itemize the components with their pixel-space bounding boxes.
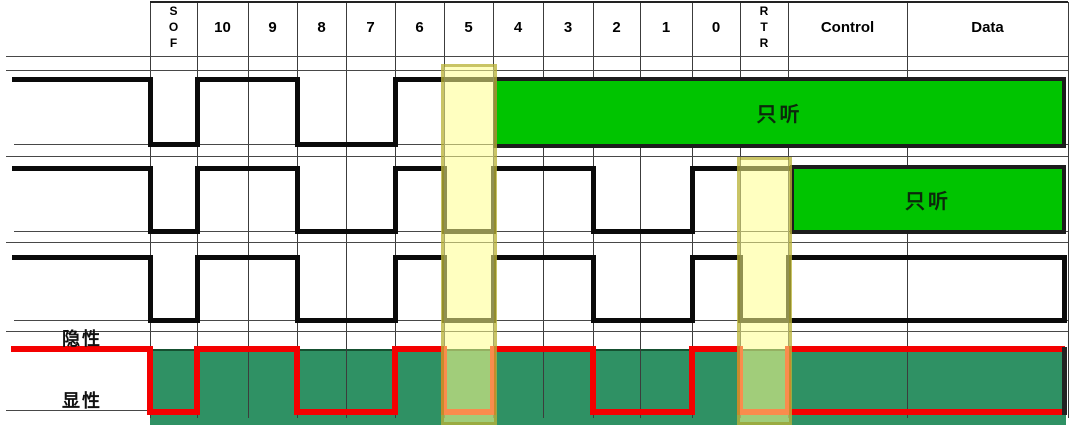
grid-line-vertical — [346, 2, 347, 418]
node2-waveform-segment — [491, 166, 546, 171]
node1-waveform-segment — [246, 77, 300, 82]
column-header-7: 7 — [346, 19, 395, 36]
node1-waveform-transition — [195, 77, 200, 147]
column-header-10: 10 — [197, 19, 248, 36]
bus-waveform-segment — [392, 346, 447, 352]
can-arbitration-timing-diagram: 隐性 显性 只听只听S O F109876543210R T RControlD… — [0, 0, 1080, 425]
node2-waveform-transition — [195, 166, 200, 234]
column-header-SOF: S O F — [150, 3, 197, 51]
node2-waveform-segment — [541, 166, 596, 171]
node2-waveform-transition — [148, 166, 153, 234]
column-header-1: 1 — [640, 19, 692, 36]
node3-waveform-transition — [393, 255, 398, 323]
bus-frame-bottom — [785, 409, 1065, 415]
grid-line-vertical — [248, 2, 249, 418]
column-header-0: 0 — [692, 19, 740, 36]
column-header-8: 8 — [297, 19, 346, 36]
bus-waveform-segment — [540, 346, 596, 352]
node2-waveform-segment — [638, 229, 695, 234]
node2-waveform-segment — [148, 229, 200, 234]
dominant-level-label: 显性 — [42, 387, 122, 413]
node1-waveform-segment — [344, 142, 398, 147]
node1-waveform-transition — [148, 77, 153, 147]
node1-waveform-segment — [393, 77, 447, 82]
bus-waveform-transition — [590, 346, 596, 415]
arbitration-loss-highlight-RTR — [737, 157, 792, 425]
bus-waveform-segment — [590, 409, 643, 415]
bus-waveform-segment — [343, 409, 398, 415]
node2-waveform-segment — [591, 229, 643, 234]
bus-waveform-segment — [147, 409, 200, 415]
node2-waveform-segment — [393, 166, 447, 171]
grid-line-vertical — [1068, 2, 1069, 418]
node3-waveform-segment — [195, 255, 251, 260]
node2-waveform-transition — [295, 166, 300, 234]
bus-waveform-segment — [689, 346, 743, 352]
table-top-border — [150, 1, 1068, 3]
bus-waveform-segment — [245, 346, 300, 352]
node3-frame-right-edge — [1062, 255, 1067, 323]
bus-frame-right-edge — [1062, 347, 1067, 415]
bus-waveform-transition — [194, 346, 200, 415]
grid-line-horizontal — [6, 242, 1068, 243]
bus-waveform-transition — [392, 346, 398, 415]
column-header-2: 2 — [593, 19, 640, 36]
column-header-6: 6 — [395, 19, 444, 36]
recessive-level-label: 隐性 — [42, 325, 122, 351]
bus-waveform-transition — [689, 346, 695, 415]
grid-line-horizontal — [6, 70, 1068, 71]
grid-line-horizontal — [6, 56, 1068, 57]
column-header-4: 4 — [493, 19, 543, 36]
grid-line-vertical — [640, 2, 641, 418]
bus-waveform-transition — [147, 346, 153, 415]
node3-waveform-segment — [491, 255, 546, 260]
node3-waveform-transition — [591, 255, 596, 323]
node1-waveform-transition — [393, 77, 398, 147]
node1-waveform-transition — [295, 77, 300, 147]
grid-line-horizontal — [6, 331, 1068, 332]
node1-waveform-segment — [195, 77, 251, 82]
node1-waveform-segment — [295, 142, 349, 147]
node3-waveform-segment — [344, 318, 398, 323]
node2-waveform-segment — [246, 166, 300, 171]
node3-frame-top — [786, 255, 1067, 260]
node1-waveform-segment — [148, 142, 200, 147]
node2-waveform-transition — [690, 166, 695, 234]
column-header-9: 9 — [248, 19, 297, 36]
column-header-Control: Control — [788, 19, 907, 36]
bus-waveform-segment — [194, 346, 251, 352]
node3-waveform-transition — [690, 255, 695, 323]
node2-waveform-segment — [195, 166, 251, 171]
column-header-3: 3 — [543, 19, 593, 36]
bus-waveform-segment — [490, 346, 546, 352]
node2-waveform-segment — [344, 229, 398, 234]
node2-waveform-transition — [393, 166, 398, 234]
grid-line-vertical — [543, 2, 544, 418]
node3-frame-bottom — [786, 318, 1067, 323]
node3-waveform-segment — [690, 255, 743, 260]
node3-waveform-segment — [148, 318, 200, 323]
node3-waveform-transition — [295, 255, 300, 323]
node2-listen-only-box: 只听 — [790, 165, 1066, 234]
node1-waveform-segment — [12, 77, 153, 82]
bus-frame-top — [785, 346, 1065, 352]
bus-waveform-segment — [637, 409, 695, 415]
node2-waveform-transition — [591, 166, 596, 234]
node3-waveform-segment — [591, 318, 643, 323]
node3-waveform-segment — [541, 255, 596, 260]
node2-waveform-segment — [295, 229, 349, 234]
node3-waveform-transition — [148, 255, 153, 323]
node1-listen-only-box: 只听 — [493, 77, 1066, 148]
column-header-Data: Data — [907, 19, 1068, 36]
node2-waveform-segment — [690, 166, 743, 171]
node3-waveform-segment — [393, 255, 447, 260]
bus-waveform-segment — [294, 409, 349, 415]
node3-waveform-segment — [295, 318, 349, 323]
column-header-RTR: R T R — [740, 3, 788, 51]
node3-waveform-transition — [195, 255, 200, 323]
node3-waveform-segment — [246, 255, 300, 260]
bus-waveform-transition — [294, 346, 300, 415]
arbitration-loss-highlight-5 — [441, 64, 497, 425]
node3-waveform-segment — [12, 255, 153, 260]
node2-waveform-segment — [12, 166, 153, 171]
grid-line-horizontal — [6, 156, 1068, 157]
column-header-5: 5 — [444, 19, 493, 36]
node3-waveform-segment — [638, 318, 695, 323]
